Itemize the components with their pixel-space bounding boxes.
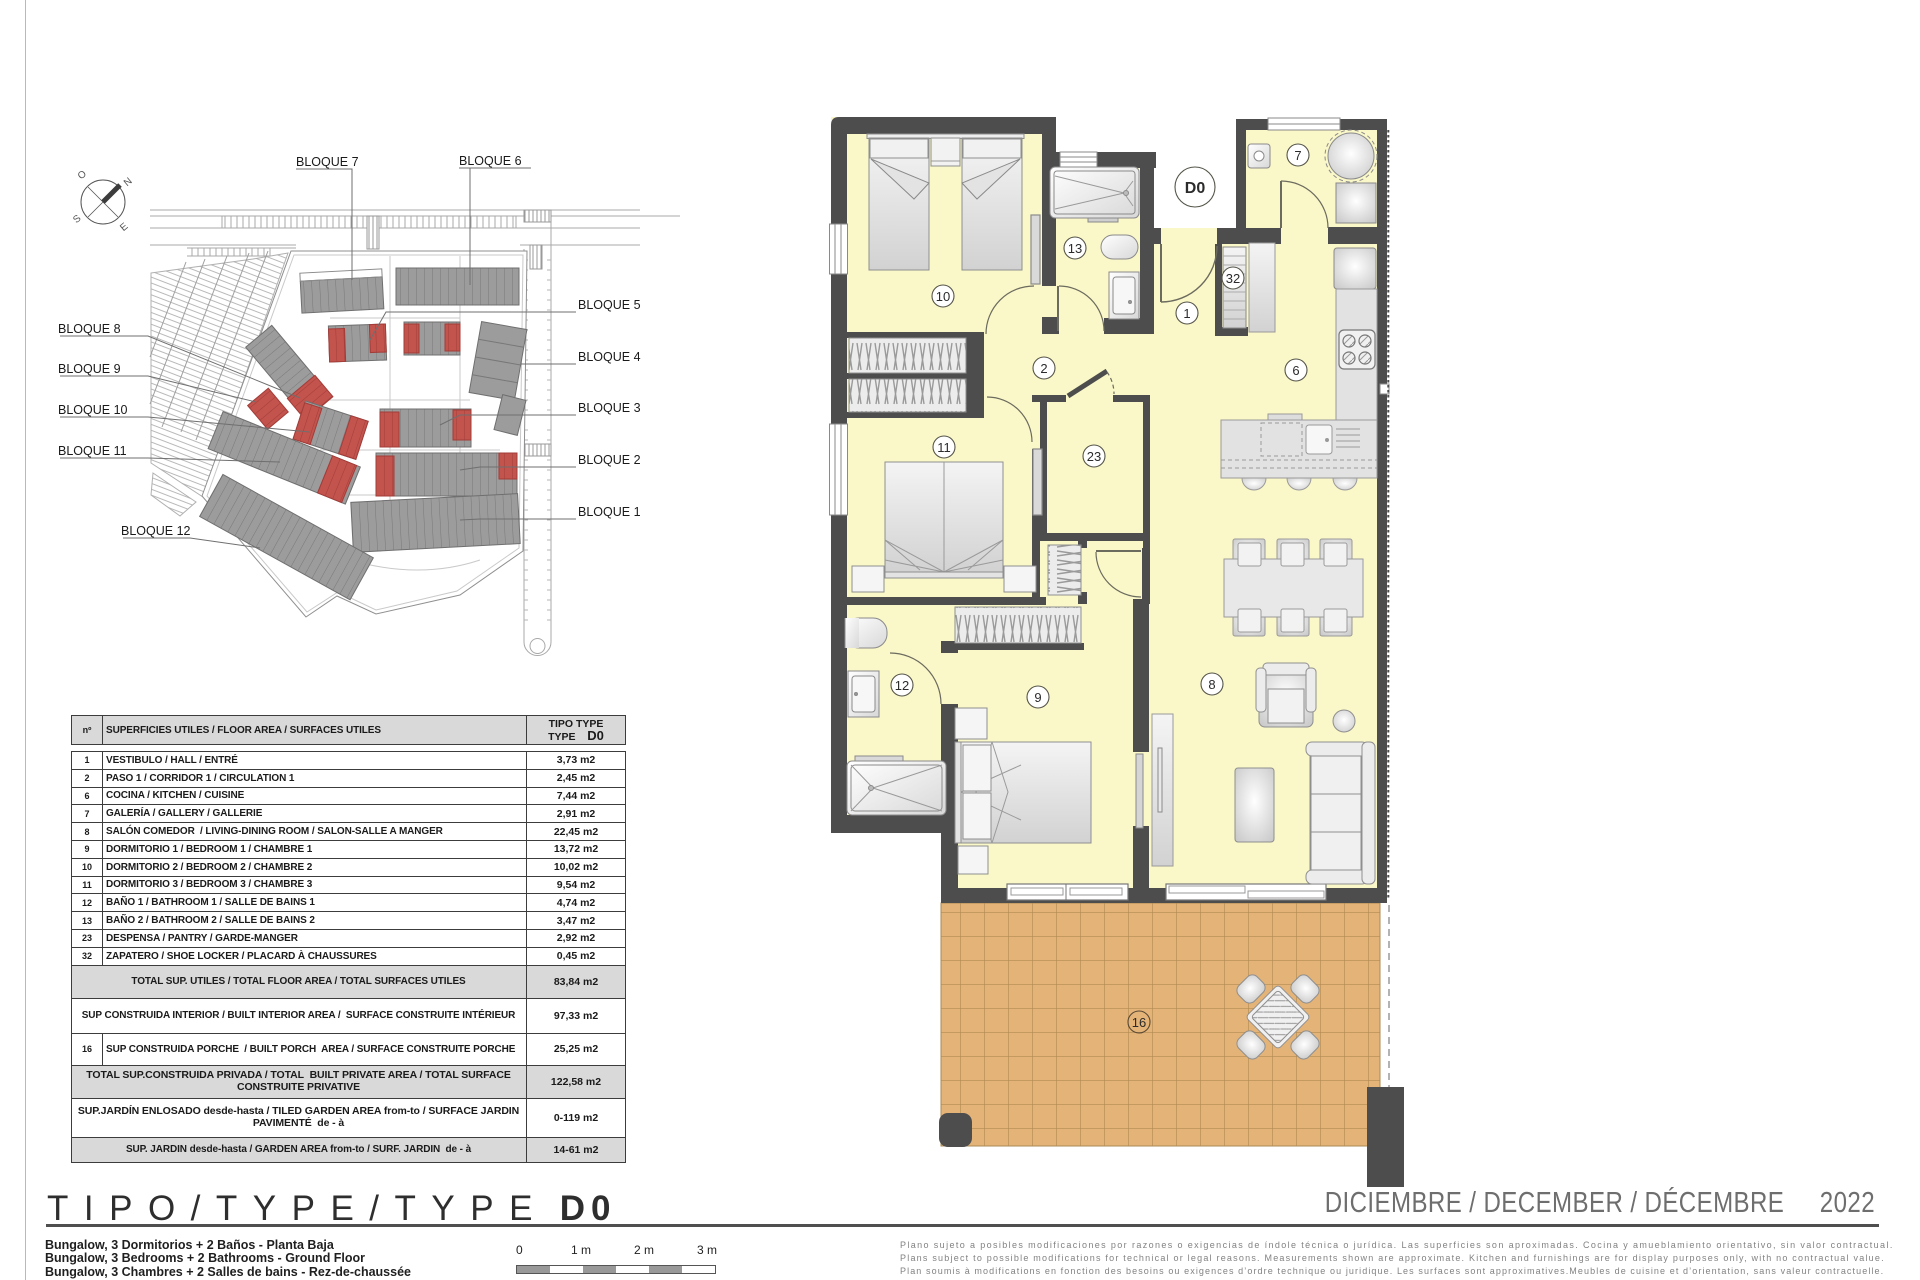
svg-text:BLOQUE 4: BLOQUE 4 bbox=[578, 350, 641, 364]
svg-text:O: O bbox=[76, 169, 89, 183]
svg-text:7: 7 bbox=[1294, 148, 1301, 163]
svg-text:2: 2 bbox=[1040, 361, 1047, 376]
svg-text:10: 10 bbox=[936, 289, 950, 304]
svg-text:BLOQUE 1: BLOQUE 1 bbox=[578, 505, 641, 519]
svg-text:32: 32 bbox=[1226, 271, 1240, 286]
svg-text:N: N bbox=[122, 176, 135, 189]
svg-text:11: 11 bbox=[937, 440, 951, 455]
svg-text:16: 16 bbox=[1132, 1015, 1146, 1030]
svg-text:BLOQUE 3: BLOQUE 3 bbox=[578, 401, 641, 415]
svg-text:BLOQUE 9: BLOQUE 9 bbox=[58, 362, 121, 376]
svg-text:BLOQUE 10: BLOQUE 10 bbox=[58, 403, 128, 417]
svg-text:BLOQUE 2: BLOQUE 2 bbox=[578, 453, 641, 467]
svg-text:13: 13 bbox=[1068, 241, 1082, 256]
svg-text:8: 8 bbox=[1208, 677, 1215, 692]
svg-text:BLOQUE 5: BLOQUE 5 bbox=[578, 298, 641, 312]
svg-text:1: 1 bbox=[1183, 306, 1190, 321]
svg-text:E: E bbox=[118, 221, 130, 234]
svg-text:BLOQUE 11: BLOQUE 11 bbox=[58, 444, 127, 458]
svg-text:9: 9 bbox=[1034, 690, 1041, 705]
svg-text:6: 6 bbox=[1292, 363, 1299, 378]
svg-text:23: 23 bbox=[1087, 449, 1101, 464]
svg-text:BLOQUE 12: BLOQUE 12 bbox=[121, 524, 191, 538]
svg-text:12: 12 bbox=[895, 678, 909, 693]
svg-text:BLOQUE 7: BLOQUE 7 bbox=[296, 155, 359, 169]
svg-text:BLOQUE 6: BLOQUE 6 bbox=[459, 154, 522, 168]
svg-text:S: S bbox=[71, 213, 83, 226]
svg-text:BLOQUE 8: BLOQUE 8 bbox=[58, 322, 121, 336]
svg-text:D0: D0 bbox=[1185, 180, 1206, 197]
